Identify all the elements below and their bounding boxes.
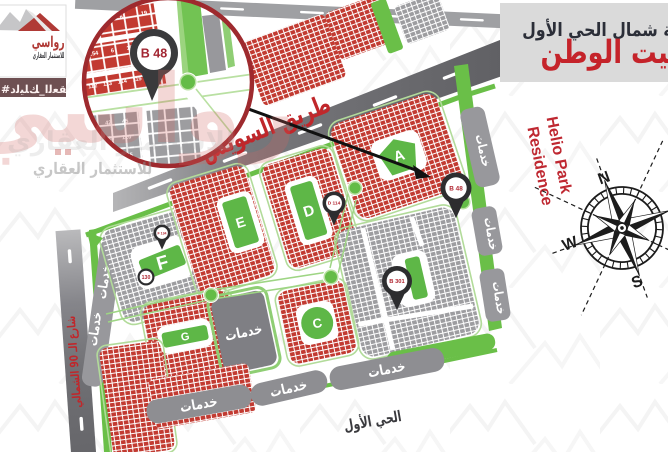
svg-text:B 48: B 48 (449, 185, 463, 192)
svg-text:130: 130 (142, 275, 151, 281)
svg-text:196: 196 (140, 151, 150, 158)
svg-text:D 114: D 114 (328, 201, 341, 207)
svg-text:B 48: B 48 (141, 47, 167, 61)
svg-text:B 301: B 301 (389, 279, 405, 285)
svg-text:F 134: F 134 (158, 231, 167, 235)
svg-text:19: 19 (141, 10, 148, 17)
